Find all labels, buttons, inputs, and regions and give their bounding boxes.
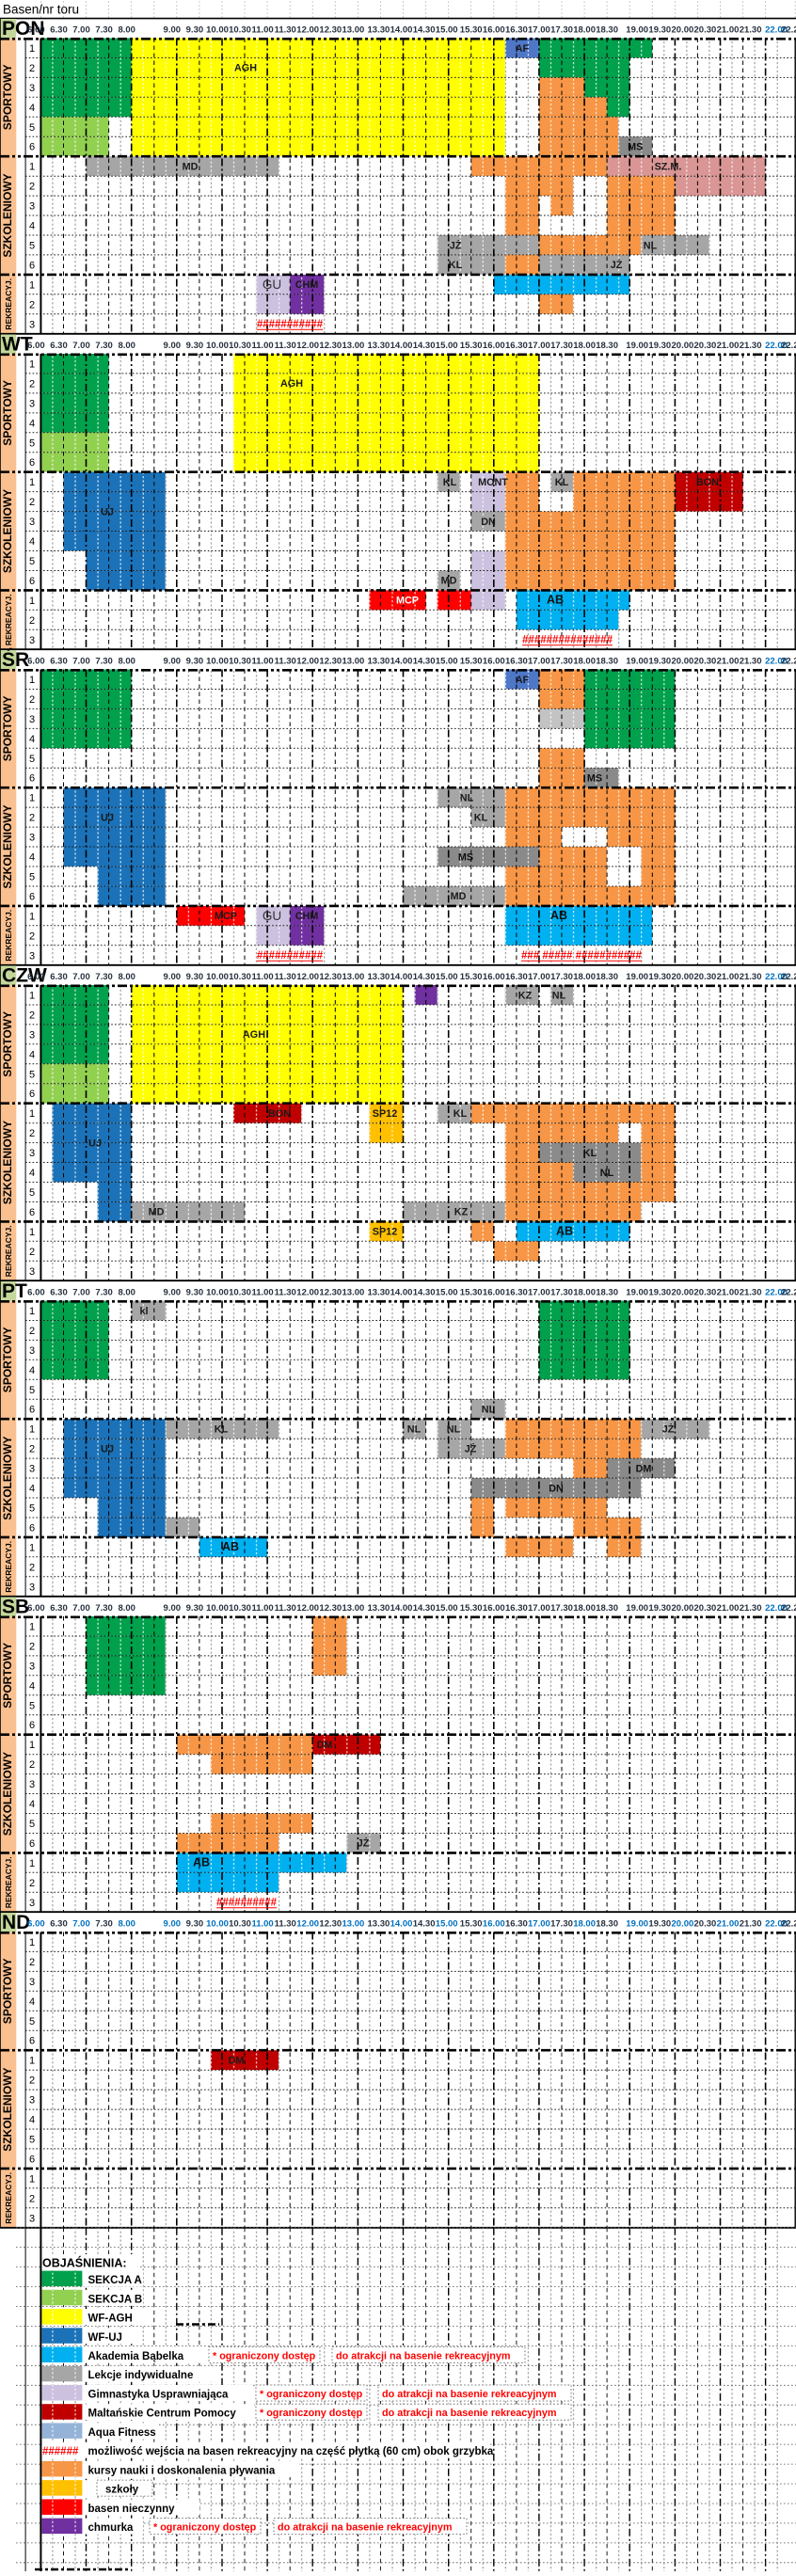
svg-text:2: 2 — [29, 1878, 35, 1889]
svg-text:2: 2 — [29, 1957, 35, 1968]
svg-text:2: 2 — [29, 182, 35, 193]
svg-text:11.30: 11.30 — [275, 341, 296, 351]
svg-text:SZKOLENIOWY: SZKOLENIOWY — [1, 1121, 14, 1204]
svg-text:16.00: 16.00 — [483, 1288, 505, 1298]
svg-text:4: 4 — [29, 1365, 35, 1376]
svg-text:SZ.M.: SZ.M. — [655, 162, 682, 173]
svg-text:3: 3 — [29, 635, 35, 646]
svg-text:6: 6 — [29, 1522, 35, 1534]
svg-text:do atrakcji na basenie rekreac: do atrakcji na basenie rekreacyjnym — [278, 2522, 452, 2534]
svg-text:3: 3 — [29, 1779, 35, 1790]
svg-text:7.30: 7.30 — [95, 1919, 113, 1930]
svg-text:KL: KL — [443, 477, 457, 488]
svg-text:DM: DM — [229, 2056, 245, 2067]
svg-text:16.00: 16.00 — [483, 657, 505, 667]
svg-text:21.00: 21.00 — [717, 1603, 740, 1614]
svg-text:20.30: 20.30 — [694, 1603, 717, 1614]
svg-text:6: 6 — [29, 891, 35, 902]
svg-text:15.30: 15.30 — [460, 1919, 483, 1930]
svg-text:2: 2 — [29, 299, 35, 310]
svg-text:20.00: 20.00 — [672, 25, 694, 36]
svg-text:10.00: 10.00 — [206, 1603, 229, 1614]
svg-text:3: 3 — [29, 1464, 35, 1475]
svg-text:1: 1 — [29, 991, 35, 1002]
svg-text:11.30: 11.30 — [275, 657, 296, 667]
svg-text:5: 5 — [29, 1503, 35, 1515]
svg-text:6.30: 6.30 — [50, 341, 68, 351]
svg-text:10.30: 10.30 — [229, 657, 251, 667]
svg-text:3: 3 — [29, 950, 35, 962]
svg-text:19.00: 19.00 — [626, 972, 648, 982]
svg-text:2: 2 — [29, 615, 35, 627]
svg-text:6: 6 — [29, 1405, 35, 1416]
svg-text:8.00: 8.00 — [118, 1603, 135, 1614]
svg-text:19.00: 19.00 — [626, 1288, 648, 1298]
svg-text:SPORTOWY: SPORTOWY — [1, 64, 14, 130]
svg-text:AF: AF — [516, 43, 530, 55]
svg-text:12.00: 12.00 — [296, 1919, 319, 1930]
svg-text:11.30: 11.30 — [275, 1603, 296, 1614]
svg-text:8.00: 8.00 — [118, 1919, 135, 1930]
svg-text:do atrakcji na basenie rekreac: do atrakcji na basenie rekreacyjnym — [382, 2389, 556, 2400]
svg-text:UJ: UJ — [101, 812, 114, 823]
svg-text:18.30: 18.30 — [596, 1603, 618, 1614]
svg-text:AGH: AGH — [243, 1029, 265, 1041]
svg-text:DM: DM — [317, 1740, 333, 1751]
svg-text:Maltańskie Centrum Pomocy: Maltańskie Centrum Pomocy — [88, 2409, 237, 2420]
svg-text:12.30: 12.30 — [319, 341, 342, 351]
svg-text:14.30: 14.30 — [413, 1603, 436, 1614]
svg-text:22.20: 22.20 — [781, 972, 796, 982]
svg-text:NL: NL — [644, 240, 658, 251]
svg-text:3: 3 — [29, 714, 35, 725]
svg-text:4: 4 — [29, 2115, 35, 2126]
svg-text:WF-UJ: WF-UJ — [88, 2332, 122, 2344]
svg-text:3: 3 — [29, 319, 35, 330]
svg-text:9.00: 9.00 — [164, 1919, 182, 1930]
svg-text:17.30: 17.30 — [550, 1603, 573, 1614]
svg-text:SP12: SP12 — [373, 1227, 397, 1238]
svg-text:GU: GU — [263, 909, 281, 923]
svg-text:SPORTOWY: SPORTOWY — [1, 1958, 14, 2024]
svg-text:15.30: 15.30 — [460, 25, 483, 36]
svg-text:21.30: 21.30 — [740, 657, 762, 667]
svg-text:1: 1 — [29, 1108, 35, 1120]
svg-text:1: 1 — [29, 1227, 35, 1238]
svg-text:1: 1 — [29, 1858, 35, 1869]
svg-text:7.00: 7.00 — [72, 657, 90, 667]
svg-text:4: 4 — [29, 103, 35, 114]
svg-text:KL: KL — [454, 1108, 468, 1120]
svg-text:21.30: 21.30 — [740, 1288, 762, 1298]
svg-text:21.00: 21.00 — [717, 657, 740, 667]
svg-text:5: 5 — [29, 872, 35, 883]
svg-text:KL: KL — [215, 1424, 229, 1436]
svg-text:6: 6 — [29, 576, 35, 587]
svg-text:21.30: 21.30 — [740, 1919, 762, 1930]
svg-text:NL: NL — [407, 1424, 422, 1436]
svg-text:KL: KL — [555, 477, 569, 488]
svg-text:8.00: 8.00 — [118, 25, 135, 36]
svg-text:1: 1 — [29, 2173, 35, 2185]
svg-text:1: 1 — [29, 477, 35, 488]
svg-text:18.30: 18.30 — [596, 657, 618, 667]
svg-text:22.20: 22.20 — [781, 341, 796, 351]
svg-text:7.30: 7.30 — [95, 341, 113, 351]
svg-text:2: 2 — [29, 63, 35, 74]
svg-text:ND: ND — [2, 1912, 30, 1933]
svg-text:21.30: 21.30 — [740, 972, 762, 982]
svg-text:JŻ: JŻ — [662, 1423, 675, 1436]
svg-text:REKREACYJ.: REKREACYJ. — [4, 594, 13, 645]
svg-text:10.30: 10.30 — [229, 25, 251, 36]
svg-text:5: 5 — [29, 1385, 35, 1396]
svg-text:14.30: 14.30 — [413, 1288, 436, 1298]
svg-text:BON: BON — [696, 477, 719, 488]
svg-text:18.00: 18.00 — [573, 25, 596, 36]
svg-text:12.30: 12.30 — [319, 972, 342, 982]
svg-text:1: 1 — [29, 911, 35, 922]
svg-text:12.00: 12.00 — [296, 657, 319, 667]
svg-text:15.00: 15.00 — [436, 1603, 458, 1614]
svg-text:14.00: 14.00 — [390, 1603, 413, 1614]
svg-text:18.30: 18.30 — [596, 972, 618, 982]
svg-text:9.30: 9.30 — [186, 341, 204, 351]
svg-text:4: 4 — [29, 1996, 35, 2008]
svg-text:15.00: 15.00 — [436, 25, 458, 36]
svg-text:10.30: 10.30 — [229, 1919, 251, 1930]
svg-text:2: 2 — [29, 1128, 35, 1139]
svg-text:2: 2 — [29, 1247, 35, 1258]
svg-text:9.00: 9.00 — [164, 341, 182, 351]
svg-text:2: 2 — [29, 378, 35, 390]
svg-text:1: 1 — [29, 1937, 35, 1948]
svg-text:4: 4 — [29, 418, 35, 429]
svg-text:DN: DN — [549, 1483, 564, 1494]
svg-text:5: 5 — [29, 1069, 35, 1080]
svg-text:3: 3 — [29, 1029, 35, 1041]
svg-text:3: 3 — [29, 2213, 35, 2224]
svg-text:REKREACYJ.: REKREACYJ. — [4, 278, 13, 330]
svg-text:15.30: 15.30 — [460, 1288, 483, 1298]
svg-text:5: 5 — [29, 241, 35, 252]
svg-text:10.00: 10.00 — [206, 25, 229, 36]
svg-text:20.30: 20.30 — [694, 1919, 717, 1930]
svg-text:SZKOLENIOWY: SZKOLENIOWY — [1, 489, 14, 573]
svg-text:11.00: 11.00 — [251, 1603, 273, 1614]
svg-text:AB: AB — [550, 909, 567, 922]
svg-text:SEKCJA B: SEKCJA B — [88, 2294, 143, 2305]
svg-text:2: 2 — [29, 1326, 35, 1337]
svg-text:21.00: 21.00 — [717, 1919, 740, 1930]
svg-text:15.30: 15.30 — [460, 1603, 483, 1614]
svg-text:16.30: 16.30 — [505, 972, 528, 982]
svg-text:10.00: 10.00 — [206, 972, 229, 982]
svg-text:6.30: 6.30 — [50, 1288, 68, 1298]
svg-text:17.00: 17.00 — [528, 25, 550, 36]
svg-text:9.00: 9.00 — [164, 1288, 182, 1298]
svg-text:6: 6 — [29, 1207, 35, 1218]
svg-text:10.00: 10.00 — [206, 657, 229, 667]
svg-text:1: 1 — [29, 1306, 35, 1317]
svg-text:możliwość wejścia na basen rek: możliwość wejścia na basen rekreacyjny n… — [88, 2446, 494, 2457]
svg-text:18.30: 18.30 — [596, 1919, 618, 1930]
svg-text:12.00: 12.00 — [296, 341, 319, 351]
svg-text:GU: GU — [263, 278, 281, 292]
svg-text:MS: MS — [628, 142, 643, 153]
svg-text:7.00: 7.00 — [72, 1919, 90, 1930]
svg-text:JŻ: JŻ — [450, 239, 462, 251]
svg-text:NL: NL — [600, 1168, 614, 1179]
svg-text:3: 3 — [29, 2095, 35, 2107]
svg-text:* ograniczony dostęp: * ograniczony dostęp — [213, 2351, 316, 2362]
svg-text:13.00: 13.00 — [342, 972, 365, 982]
svg-text:MS: MS — [458, 851, 473, 863]
svg-text:9.30: 9.30 — [186, 657, 204, 667]
svg-text:12.00: 12.00 — [296, 1603, 319, 1614]
svg-text:15.00: 15.00 — [436, 1288, 458, 1298]
svg-text:2: 2 — [29, 930, 35, 942]
svg-text:8.00: 8.00 — [118, 1288, 135, 1298]
svg-text:MS: MS — [587, 773, 602, 785]
svg-text:14.00: 14.00 — [390, 657, 413, 667]
svg-text:* ograniczony dostęp: * ograniczony dostęp — [260, 2389, 363, 2400]
svg-text:12.30: 12.30 — [319, 657, 342, 667]
svg-text:18.30: 18.30 — [596, 25, 618, 36]
svg-text:13.00: 13.00 — [342, 1919, 365, 1930]
svg-text:5: 5 — [29, 2016, 35, 2027]
svg-text:UJ: UJ — [88, 1137, 102, 1149]
svg-text:Basen/nr toru: Basen/nr toru — [3, 3, 79, 17]
svg-text:SEKCJA A: SEKCJA A — [88, 2275, 142, 2286]
svg-text:6.00: 6.00 — [27, 657, 45, 667]
svg-text:14.30: 14.30 — [413, 341, 436, 351]
svg-text:6: 6 — [29, 1089, 35, 1100]
svg-text:12.00: 12.00 — [296, 972, 319, 982]
svg-text:###########: ########### — [257, 950, 324, 962]
svg-text:REKREACYJ.: REKREACYJ. — [4, 1541, 13, 1593]
svg-text:14.30: 14.30 — [413, 972, 436, 982]
svg-text:kl: kl — [139, 1306, 148, 1317]
svg-text:3: 3 — [29, 1661, 35, 1672]
svg-text:szkoły: szkoły — [105, 2485, 139, 2496]
svg-text:5: 5 — [29, 437, 35, 449]
svg-text:11.00: 11.00 — [251, 1288, 273, 1298]
svg-text:6.00: 6.00 — [27, 1603, 45, 1614]
svg-text:13.30: 13.30 — [368, 1603, 390, 1614]
svg-text:21.00: 21.00 — [717, 1288, 740, 1298]
svg-text:BON: BON — [268, 1108, 291, 1120]
svg-text:5: 5 — [29, 1187, 35, 1199]
svg-text:DM: DM — [636, 1463, 652, 1474]
svg-text:6: 6 — [29, 1720, 35, 1731]
svg-text:13.30: 13.30 — [368, 1288, 390, 1298]
svg-text:5: 5 — [29, 754, 35, 765]
svg-text:20.30: 20.30 — [694, 25, 717, 36]
svg-text:1: 1 — [29, 162, 35, 173]
svg-text:REKREACYJ.: REKREACYJ. — [4, 910, 13, 962]
svg-text:20.30: 20.30 — [694, 1288, 717, 1298]
svg-text:6: 6 — [29, 2036, 35, 2047]
svg-text:18.00: 18.00 — [573, 972, 596, 982]
svg-text:1: 1 — [29, 675, 35, 686]
svg-text:1: 1 — [29, 279, 35, 291]
svg-text:20.00: 20.00 — [672, 1603, 694, 1614]
svg-text:SPORTOWY: SPORTOWY — [1, 1327, 14, 1392]
svg-text:AB: AB — [222, 1540, 239, 1553]
svg-text:6.00: 6.00 — [27, 1288, 45, 1298]
svg-text:17.00: 17.00 — [528, 1603, 550, 1614]
svg-text:17.00: 17.00 — [528, 341, 550, 351]
svg-text:2: 2 — [29, 1562, 35, 1573]
svg-text:14.30: 14.30 — [413, 657, 436, 667]
svg-text:7.00: 7.00 — [72, 972, 90, 982]
svg-text:16.30: 16.30 — [505, 657, 528, 667]
svg-text:10.00: 10.00 — [206, 1919, 229, 1930]
svg-text:20.00: 20.00 — [672, 1919, 694, 1930]
svg-text:9.30: 9.30 — [186, 1288, 204, 1298]
svg-text:4: 4 — [29, 852, 35, 864]
svg-text:22.20: 22.20 — [781, 657, 796, 667]
svg-text:19.30: 19.30 — [648, 1603, 671, 1614]
svg-text:10.30: 10.30 — [229, 1288, 251, 1298]
svg-text:15.30: 15.30 — [460, 341, 483, 351]
svg-text:22.20: 22.20 — [781, 1288, 796, 1298]
svg-text:Aqua Fitness: Aqua Fitness — [88, 2427, 156, 2439]
svg-text:3: 3 — [29, 201, 35, 213]
svg-text:16.30: 16.30 — [505, 25, 528, 36]
svg-text:5: 5 — [29, 2135, 35, 2146]
svg-text:basen nieczynny: basen nieczynny — [88, 2504, 176, 2515]
svg-text:9.00: 9.00 — [164, 1603, 182, 1614]
svg-text:MCP: MCP — [215, 911, 237, 922]
svg-text:OBJAŚNIENIA:: OBJAŚNIENIA: — [42, 2256, 127, 2270]
svg-text:4: 4 — [29, 1484, 35, 1495]
svg-text:2: 2 — [29, 813, 35, 824]
svg-text:19.30: 19.30 — [648, 25, 671, 36]
svg-text:SPORTOWY: SPORTOWY — [1, 696, 14, 762]
svg-text:20.30: 20.30 — [694, 341, 717, 351]
svg-text:19.30: 19.30 — [648, 657, 671, 667]
svg-text:16.00: 16.00 — [483, 972, 505, 982]
svg-text:17.30: 17.30 — [550, 657, 573, 667]
svg-text:6.30: 6.30 — [50, 1603, 68, 1614]
svg-text:7.30: 7.30 — [95, 25, 113, 36]
svg-text:7.30: 7.30 — [95, 972, 113, 982]
svg-text:15.30: 15.30 — [460, 657, 483, 667]
svg-text:9.00: 9.00 — [164, 972, 182, 982]
svg-text:14.00: 14.00 — [390, 972, 413, 982]
svg-text:19.30: 19.30 — [648, 341, 671, 351]
svg-text:ŚR: ŚR — [2, 648, 29, 671]
svg-text:13.30: 13.30 — [368, 657, 390, 667]
svg-text:SZKOLENIOWY: SZKOLENIOWY — [1, 173, 14, 257]
svg-text:2: 2 — [29, 497, 35, 508]
svg-text:17.30: 17.30 — [550, 1919, 573, 1930]
svg-text:13.30: 13.30 — [368, 341, 390, 351]
svg-text:11.30: 11.30 — [275, 1288, 296, 1298]
svg-text:12.30: 12.30 — [319, 1919, 342, 1930]
svg-text:4: 4 — [29, 734, 35, 745]
svg-text:MCP: MCP — [396, 596, 419, 607]
svg-text:14.00: 14.00 — [390, 1919, 413, 1930]
svg-text:11.00: 11.00 — [251, 657, 273, 667]
svg-text:JŻ: JŻ — [465, 1442, 477, 1455]
svg-text:9.30: 9.30 — [186, 25, 204, 36]
svg-text:MD: MD — [183, 162, 199, 173]
svg-text:6.30: 6.30 — [50, 25, 68, 36]
svg-text:MD: MD — [451, 891, 467, 902]
svg-text:MD: MD — [441, 576, 457, 587]
svg-text:16.00: 16.00 — [483, 341, 505, 351]
svg-text:10.30: 10.30 — [229, 341, 251, 351]
svg-text:18.00: 18.00 — [573, 657, 596, 667]
svg-text:18.30: 18.30 — [596, 1288, 618, 1298]
svg-text:20.00: 20.00 — [672, 1288, 694, 1298]
svg-text:9.30: 9.30 — [186, 1919, 204, 1930]
svg-text:chmurka: chmurka — [88, 2522, 135, 2534]
svg-text:13.00: 13.00 — [342, 1288, 365, 1298]
svg-text:20.30: 20.30 — [694, 657, 717, 667]
svg-text:19.00: 19.00 — [626, 1919, 648, 1930]
svg-text:2: 2 — [29, 1759, 35, 1771]
svg-text:6.00: 6.00 — [27, 25, 45, 36]
svg-text:6.30: 6.30 — [50, 1919, 68, 1930]
svg-text:19.00: 19.00 — [626, 341, 648, 351]
svg-text:21.30: 21.30 — [740, 25, 762, 36]
svg-text:3: 3 — [29, 1898, 35, 1909]
svg-text:CHM: CHM — [295, 911, 319, 922]
svg-text:17.00: 17.00 — [528, 1919, 550, 1930]
svg-text:14.00: 14.00 — [390, 25, 413, 36]
svg-text:18.00: 18.00 — [573, 1919, 596, 1930]
svg-text:11.30: 11.30 — [275, 25, 296, 36]
svg-text:SB: SB — [2, 1597, 29, 1618]
svg-text:20.30: 20.30 — [694, 972, 717, 982]
svg-text:SP12: SP12 — [373, 1108, 397, 1120]
svg-text:5: 5 — [29, 1819, 35, 1830]
svg-text:7.00: 7.00 — [72, 1288, 90, 1298]
svg-text:2: 2 — [29, 2075, 35, 2087]
svg-text:KZ: KZ — [454, 1207, 469, 1218]
svg-text:3: 3 — [29, 1345, 35, 1357]
svg-text:20.00: 20.00 — [672, 657, 694, 667]
svg-text:12.00: 12.00 — [296, 1288, 319, 1298]
svg-text:AGH: AGH — [234, 63, 257, 74]
svg-text:11.00: 11.00 — [251, 972, 273, 982]
svg-text:1: 1 — [29, 2056, 35, 2067]
svg-text:17.30: 17.30 — [550, 341, 573, 351]
svg-text:18.00: 18.00 — [573, 341, 596, 351]
svg-text:1: 1 — [29, 596, 35, 607]
svg-text:19.30: 19.30 — [648, 1919, 671, 1930]
svg-text:4: 4 — [29, 221, 35, 232]
svg-text:16.30: 16.30 — [505, 1919, 528, 1930]
svg-text:MD: MD — [149, 1207, 165, 1218]
svg-text:7.30: 7.30 — [95, 657, 113, 667]
svg-text:NL: NL — [447, 1424, 461, 1436]
svg-text:20.00: 20.00 — [672, 341, 694, 351]
svg-text:Lekcje indywidualne: Lekcje indywidualne — [88, 2370, 194, 2381]
svg-text:12.30: 12.30 — [319, 25, 342, 36]
svg-text:21.00: 21.00 — [717, 25, 740, 36]
svg-text:17.00: 17.00 — [528, 1288, 550, 1298]
svg-text:21.00: 21.00 — [717, 341, 740, 351]
svg-text:13.30: 13.30 — [368, 1919, 390, 1930]
svg-text:REKREACYJ.: REKREACYJ. — [4, 1225, 13, 1277]
svg-text:##########: ########## — [216, 1898, 278, 1909]
svg-text:1: 1 — [29, 43, 35, 55]
